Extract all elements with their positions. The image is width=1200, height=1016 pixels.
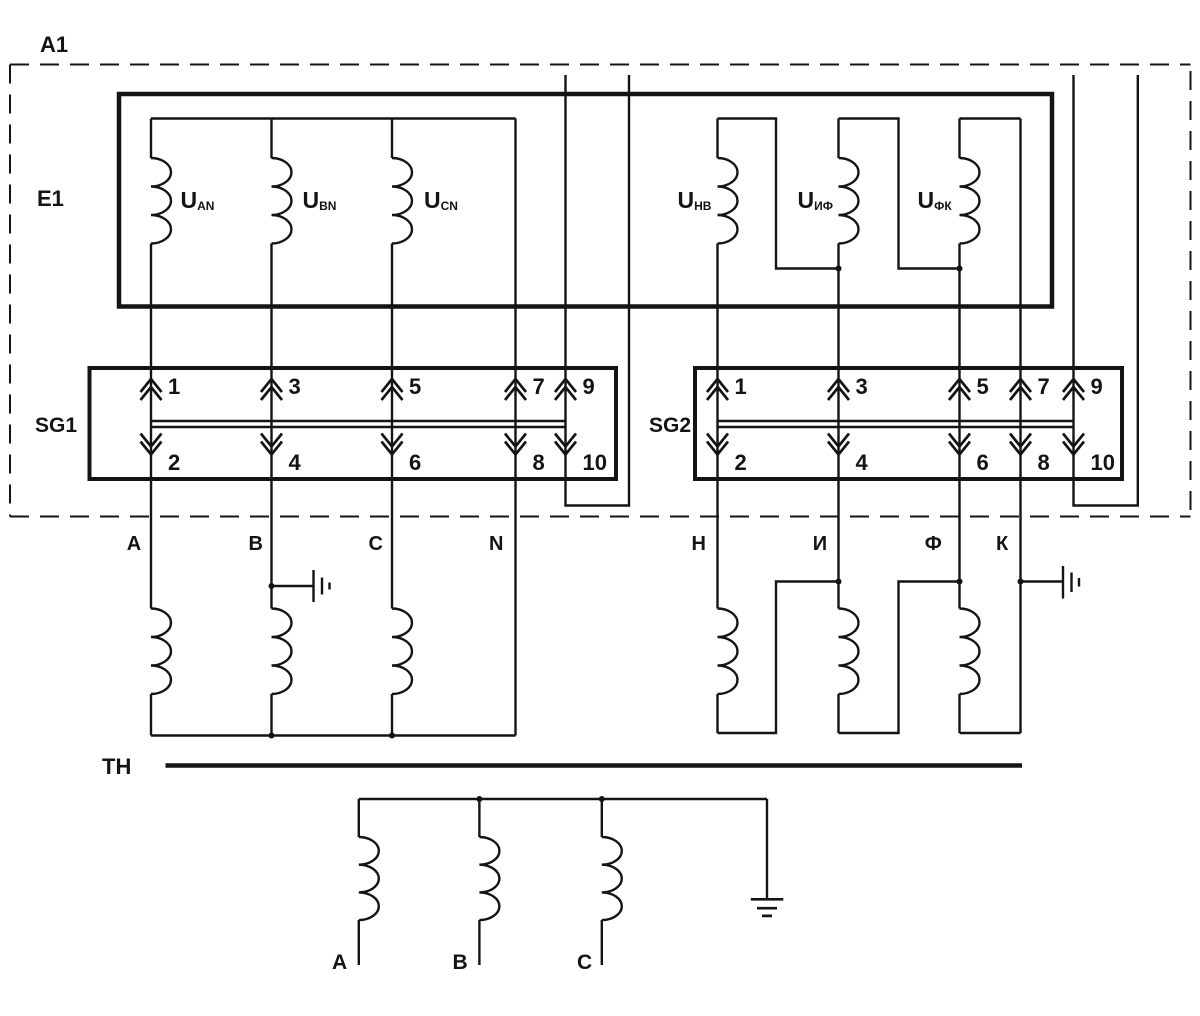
- svg-text:7: 7: [533, 374, 545, 399]
- svg-text:Н: Н: [692, 533, 706, 555]
- svg-text:8: 8: [1038, 450, 1050, 475]
- svg-text:N: N: [489, 533, 503, 555]
- svg-text:4: 4: [289, 450, 302, 475]
- svg-text:Ф: Ф: [925, 533, 942, 555]
- svg-text:1: 1: [168, 374, 180, 399]
- svg-text:5: 5: [409, 374, 421, 399]
- svg-text:1: 1: [735, 374, 747, 399]
- svg-text:9: 9: [583, 374, 595, 399]
- svg-text:9: 9: [1091, 374, 1103, 399]
- svg-text:SG2: SG2: [649, 414, 691, 437]
- svg-text:4: 4: [856, 450, 869, 475]
- svg-text:A: A: [127, 533, 141, 555]
- svg-text:A1: A1: [40, 32, 68, 57]
- svg-text:B: B: [249, 533, 263, 555]
- svg-text:UФК: UФК: [918, 187, 953, 213]
- svg-text:C: C: [577, 951, 592, 974]
- svg-text:ТН: ТН: [102, 754, 131, 779]
- svg-text:UНВ: UНВ: [678, 187, 712, 213]
- svg-text:SG1: SG1: [35, 414, 77, 437]
- svg-text:10: 10: [1091, 450, 1115, 475]
- svg-text:B: B: [453, 951, 468, 974]
- svg-text:10: 10: [583, 450, 607, 475]
- svg-text:A: A: [332, 951, 347, 974]
- svg-text:UCN: UCN: [424, 187, 458, 213]
- svg-text:6: 6: [409, 450, 421, 475]
- svg-text:UAN: UAN: [181, 187, 215, 213]
- svg-text:5: 5: [977, 374, 989, 399]
- svg-text:C: C: [369, 533, 383, 555]
- svg-text:UИФ: UИФ: [798, 187, 834, 213]
- svg-text:UBN: UBN: [303, 187, 337, 213]
- svg-text:2: 2: [735, 450, 747, 475]
- svg-text:7: 7: [1038, 374, 1050, 399]
- svg-text:И: И: [813, 533, 827, 555]
- svg-text:3: 3: [856, 374, 868, 399]
- svg-text:К: К: [996, 533, 1009, 555]
- svg-text:3: 3: [289, 374, 301, 399]
- svg-text:8: 8: [533, 450, 545, 475]
- svg-text:6: 6: [977, 450, 989, 475]
- svg-text:E1: E1: [37, 186, 64, 211]
- svg-text:2: 2: [168, 450, 180, 475]
